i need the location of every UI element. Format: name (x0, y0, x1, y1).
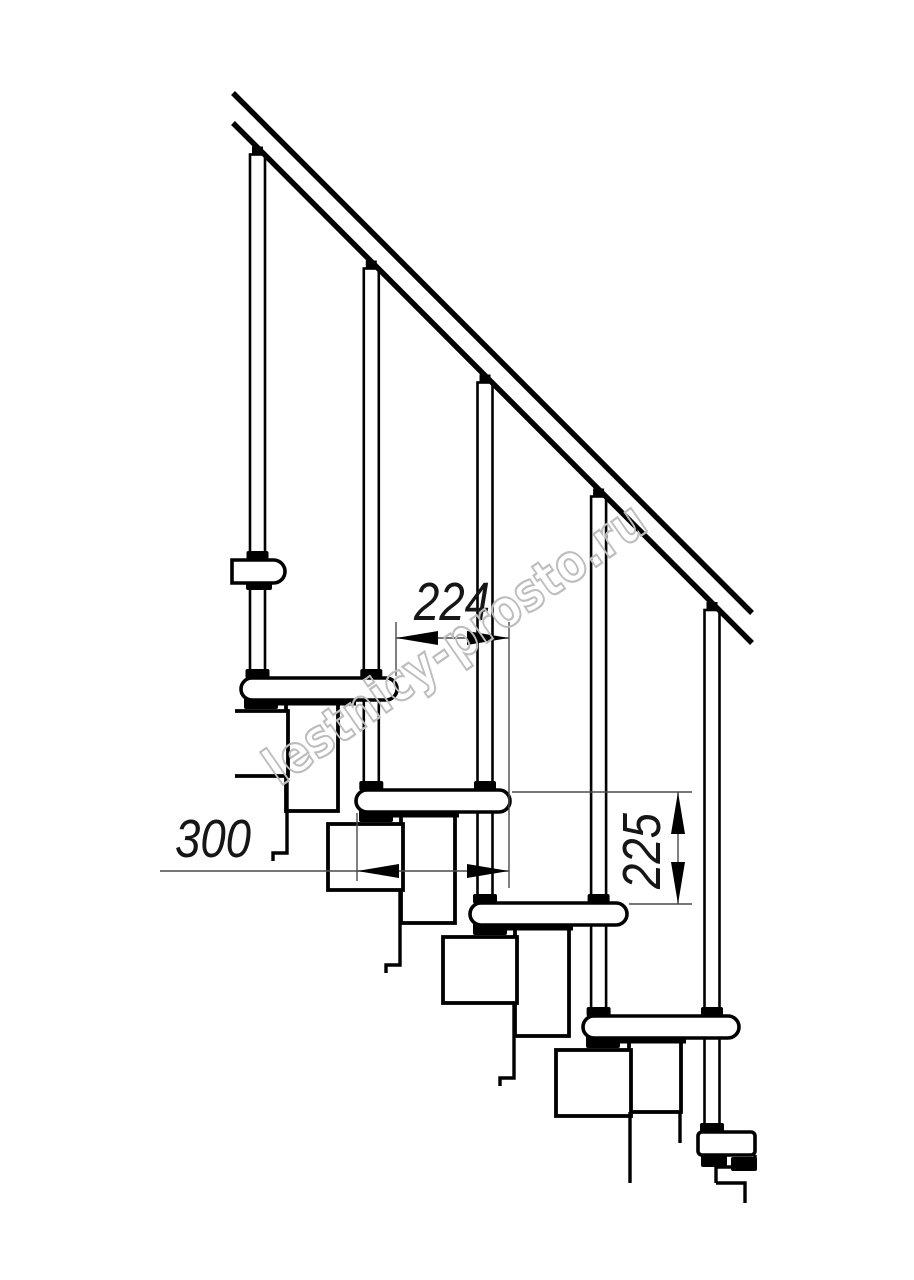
baluster-foot (587, 1007, 611, 1017)
baluster-sleeve (588, 894, 610, 904)
stringer-module-riser (629, 1040, 681, 1112)
stringer-module-box (443, 937, 517, 1003)
under-tread-bracket (359, 811, 393, 822)
tread (470, 903, 627, 925)
stringer-module-riser (515, 927, 569, 1036)
stringer-module-box (328, 824, 403, 890)
baluster-foot (359, 781, 383, 791)
baluster-sleeve (701, 1007, 723, 1017)
dimension-label: 300 (175, 809, 251, 869)
tread (698, 1132, 755, 1155)
dimension-label: 225 (612, 812, 672, 890)
under-tread-bracket (473, 924, 507, 935)
under-tread-bracket (586, 1037, 620, 1048)
baluster-sleeve (474, 781, 496, 791)
stringer-module-riser (401, 814, 455, 923)
under-tread-bracket (246, 582, 272, 590)
drawing-canvas: 224300225lestnicy-prosto.ru (0, 0, 914, 1280)
under-tread-bracket (244, 699, 278, 709)
stringer-module-box (556, 1050, 631, 1116)
staircase-drawing: 224300225lestnicy-prosto.ru (0, 0, 914, 1280)
baluster-foot (473, 894, 497, 904)
tread (232, 560, 285, 583)
baluster-foot (246, 669, 270, 679)
baluster-sleeve (247, 551, 269, 561)
baluster (250, 155, 265, 687)
baluster-foot (700, 1123, 724, 1133)
tread (356, 790, 510, 812)
baluster (705, 610, 720, 1140)
tread (583, 1016, 739, 1038)
under-tread-bracket (701, 1154, 727, 1167)
under-tread-bracket (731, 1157, 757, 1171)
